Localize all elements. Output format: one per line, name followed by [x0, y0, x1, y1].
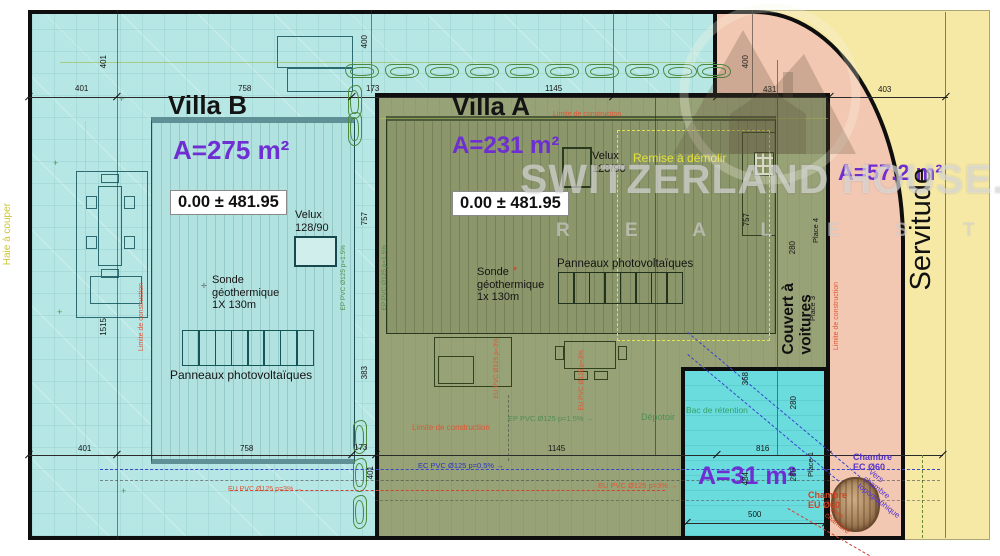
bac-retention-label: Bac de rétention: [686, 406, 748, 416]
pipe-ep-vertical: EP PVC Ø125 p=1.5%: [340, 245, 347, 310]
dim-400-v: 400: [360, 35, 369, 48]
survey-cross-icon: +: [57, 307, 62, 317]
bush-icon: [353, 458, 367, 492]
hedge-line: [60, 62, 715, 63]
sonde-marker-icon: ✛: [201, 282, 207, 290]
dim-757-v: 757: [742, 213, 751, 226]
dim-280-v: 280: [789, 468, 798, 481]
bush-icon: [425, 64, 459, 78]
dim-758: 758: [240, 444, 253, 453]
bush-icon: [385, 64, 419, 78]
villa-a-title: Villa A: [452, 91, 530, 122]
chair-icon: [555, 346, 564, 360]
survey-cross-icon: +: [53, 158, 58, 168]
pipe-eu-label: EU PVC Ø125 p=3% →: [598, 481, 677, 490]
dim-484-v: 484: [741, 472, 750, 485]
pipe-dashed-line: [508, 395, 509, 461]
villa-b-steps: [287, 68, 353, 92]
chair-icon: [86, 196, 97, 209]
villa-a-table: [564, 341, 616, 369]
limite-label: Limite de construction: [553, 111, 621, 118]
place3-label: Place 3: [808, 296, 817, 321]
bush-icon: [663, 64, 697, 78]
chair-icon: [618, 346, 627, 360]
construction-line: [371, 10, 372, 93]
limit-line: [380, 118, 828, 119]
construction-line: [117, 10, 118, 540]
haie-label: Haie à couper: [2, 203, 13, 265]
dim-758: 758: [238, 84, 251, 93]
villa-b-sonde-label: Sonde géothermique 1X 130m: [212, 274, 279, 312]
pipe-ec-label: EC PVC Ø125 p=0.5% →: [418, 461, 504, 470]
servitude-line: [945, 12, 946, 538]
villa-b-elevation: 0.00 ± 481.95: [170, 190, 287, 215]
sonde-marker-icon: ✶: [512, 265, 518, 273]
villa-b-steps: [277, 36, 353, 68]
limite-label: Limite de construction: [412, 423, 490, 432]
servitude-dashed-line: [922, 455, 923, 538]
construction-line: [777, 60, 778, 455]
dim-816: 816: [756, 444, 769, 453]
servitude-label: Servitude: [905, 168, 937, 291]
remise-label: Remise à démolir: [633, 152, 726, 165]
dim-280-v: 280: [789, 396, 798, 409]
bush-icon: [625, 64, 659, 78]
dim-401: 401: [78, 444, 91, 453]
villa-b-solar-panels: [182, 330, 314, 366]
limite-label-vertical: Limite de construction: [833, 282, 841, 350]
villa-b-velux-window: [294, 236, 337, 267]
villa-a-sonde-label: Sonde géothermique 1x 130m: [477, 266, 544, 304]
chambre-eu-label: Chambre EU Ø60: [808, 490, 847, 510]
villa-a-area: A=231 m²: [452, 132, 559, 160]
villa-b-table: [98, 186, 122, 266]
construction-line: [613, 10, 614, 93]
chair-icon: [124, 236, 135, 249]
place1-label: Place 1: [806, 452, 815, 477]
bush-icon: [353, 495, 367, 529]
place4-label: Place 4: [811, 218, 820, 243]
construction-line: [752, 10, 753, 97]
pipe-ep-label: EP PVC Ø125 p=1.5% →: [508, 414, 593, 423]
dim-403: 403: [878, 85, 891, 94]
limit-line: [85, 121, 86, 455]
villa-a-velux-window: [562, 147, 592, 188]
dim-400-v: 400: [741, 55, 750, 68]
pipe-eu-vertical: EU PVC Ø125 p=3%: [493, 338, 500, 399]
villa-a-terrace-step: [438, 356, 474, 384]
pipe-eu-vertical: EU PVC Ø125 p=3%: [578, 350, 585, 411]
dim-401-v: 401: [99, 55, 108, 68]
villa-b-bench: [90, 276, 142, 304]
villa-b-panels-label: Panneaux photovoltaïques: [170, 369, 312, 383]
dim-500: 500: [748, 510, 761, 519]
dim-1145: 1145: [545, 84, 562, 93]
pipe-line: [100, 480, 940, 481]
pipe-eu-label: EU PVC Ø125 p=3% →: [228, 486, 302, 493]
bush-icon: [348, 112, 362, 146]
dim-401-v: 401: [366, 466, 375, 479]
villa-b-velux-label: Velux 128/90: [295, 209, 329, 234]
dim-368-v: 368: [741, 372, 750, 385]
dim-280-v: 280: [788, 241, 797, 254]
bush-icon: [505, 64, 539, 78]
villa-b-title: Villa B: [168, 90, 247, 121]
villa-a-panels-label: Panneaux photovoltaïques: [557, 258, 693, 271]
survey-cross-icon: +: [121, 486, 126, 496]
dim-173: 173: [366, 84, 379, 93]
villa-a-solar-panels: [558, 272, 683, 304]
dim-401: 401: [75, 84, 88, 93]
villa-a-elevation: 0.00 ± 481.95: [452, 191, 569, 216]
bush-icon: [585, 64, 619, 78]
depotoir-label: Dépotoir: [641, 412, 675, 422]
chair-icon: [594, 371, 608, 380]
dim-431: 431: [763, 85, 776, 94]
bush-icon: [345, 64, 379, 78]
dim-757-v: 757: [360, 212, 369, 225]
dim-383-v: 383: [360, 366, 369, 379]
chair-icon: [86, 236, 97, 249]
pipe-ep-vertical: EP PVC Ø125 p=1.5%: [381, 245, 388, 310]
dim-line-500: [686, 523, 826, 524]
survey-cross-icon: +: [119, 94, 124, 104]
dim-1515-v: 1515: [99, 318, 108, 336]
chair-icon: [124, 196, 135, 209]
limite-label-vertical: Limite de construction: [138, 283, 146, 351]
bush-icon: [697, 64, 731, 78]
bush-icon: [545, 64, 579, 78]
dim-173: 173: [354, 443, 367, 452]
villa-a-velux-label: Velux 128/90: [592, 150, 626, 175]
villa-b-area: A=275 m²: [173, 135, 289, 166]
site-plan: + + + + Villa B A=275 m² 0.00 ± 481.95 V…: [0, 0, 1000, 556]
dim-1145: 1145: [548, 444, 565, 453]
bush-icon: [465, 64, 499, 78]
